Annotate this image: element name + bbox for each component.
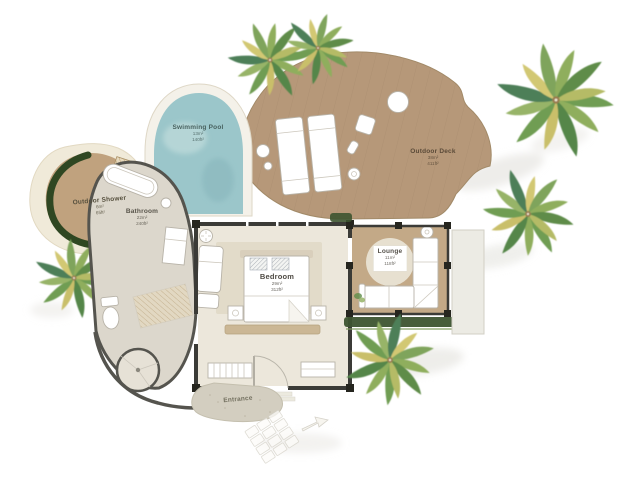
side-table bbox=[421, 226, 433, 238]
floor-plan: Swimming Pool 13m² 140ft² Outdoor Deck 3… bbox=[0, 0, 640, 480]
floor-plan-drawing bbox=[0, 0, 640, 480]
lounge-rug bbox=[366, 238, 414, 286]
wall-clock-icon bbox=[200, 230, 213, 243]
nightstand bbox=[228, 306, 243, 320]
side-platform bbox=[452, 230, 484, 334]
planter-strip bbox=[330, 213, 352, 222]
bedroom-area bbox=[192, 213, 354, 392]
bath-stool bbox=[161, 198, 171, 208]
dresser bbox=[208, 363, 252, 378]
nightstand bbox=[311, 306, 326, 320]
direction-arrow-sketch bbox=[302, 417, 328, 431]
corner-post bbox=[192, 220, 200, 228]
pillow bbox=[272, 258, 289, 270]
bed bbox=[240, 250, 313, 322]
corner-post bbox=[346, 384, 354, 392]
bed-bench bbox=[225, 325, 320, 334]
lounge-area bbox=[344, 222, 484, 334]
cabinet bbox=[301, 362, 335, 377]
side-table bbox=[264, 162, 272, 170]
outdoor-deck-area bbox=[239, 52, 491, 219]
grass-band bbox=[344, 317, 464, 327]
pillow bbox=[250, 258, 267, 270]
vanity bbox=[162, 227, 188, 265]
side-table bbox=[257, 145, 270, 158]
chaise bbox=[195, 245, 223, 309]
dining-table bbox=[388, 92, 409, 113]
